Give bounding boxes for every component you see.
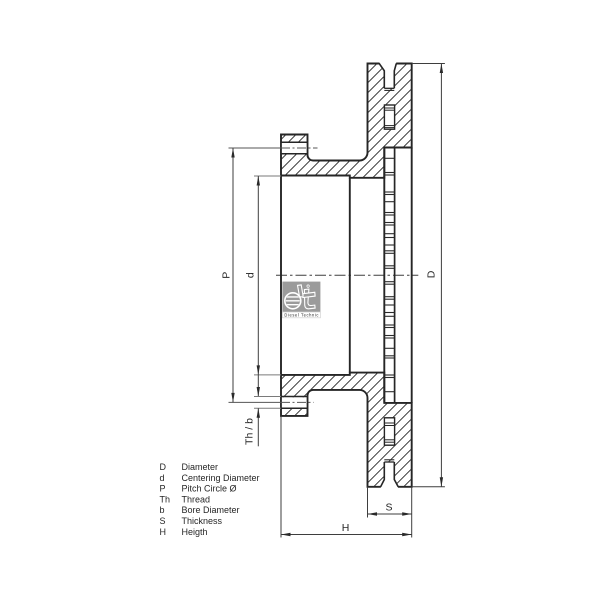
svg-text:Th / b: Th / b [244, 418, 256, 445]
svg-text:b: b [160, 505, 165, 515]
svg-text:Heigth: Heigth [182, 527, 208, 537]
svg-text:Bore Diameter: Bore Diameter [182, 505, 240, 515]
svg-text:S: S [160, 516, 166, 526]
svg-text:P: P [221, 272, 233, 279]
svg-text:Diameter: Diameter [182, 462, 219, 472]
svg-text:Th: Th [160, 494, 171, 504]
svg-text:D: D [160, 462, 167, 472]
svg-text:d: d [160, 473, 165, 483]
svg-text:Thickness: Thickness [182, 516, 223, 526]
svg-text:d: d [245, 272, 257, 278]
svg-text:P: P [160, 484, 166, 494]
svg-text:D: D [426, 270, 438, 278]
svg-text:Pitch Circle Ø: Pitch Circle Ø [182, 484, 237, 494]
svg-text:H: H [342, 522, 350, 534]
svg-text:H: H [160, 527, 167, 537]
svg-text:Diesel Technic: Diesel Technic [284, 313, 318, 318]
svg-text:Thread: Thread [182, 494, 211, 504]
svg-text:S: S [385, 502, 392, 514]
svg-text:Centering Diameter: Centering Diameter [182, 473, 260, 483]
